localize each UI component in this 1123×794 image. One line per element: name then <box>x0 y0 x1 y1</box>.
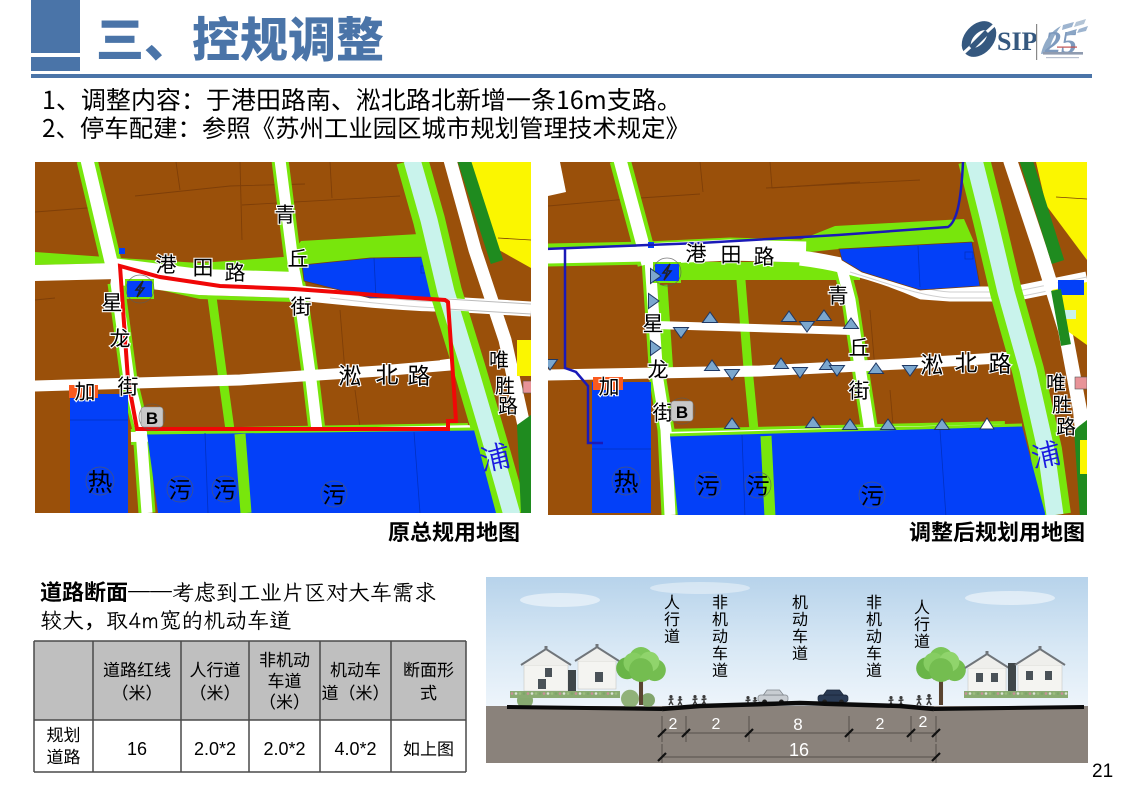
svg-text:4.0*2: 4.0*2 <box>334 739 376 759</box>
svg-text:2.0*2: 2.0*2 <box>194 739 236 759</box>
svg-text:16: 16 <box>127 739 147 759</box>
svg-text:2.0*2: 2.0*2 <box>263 739 305 759</box>
